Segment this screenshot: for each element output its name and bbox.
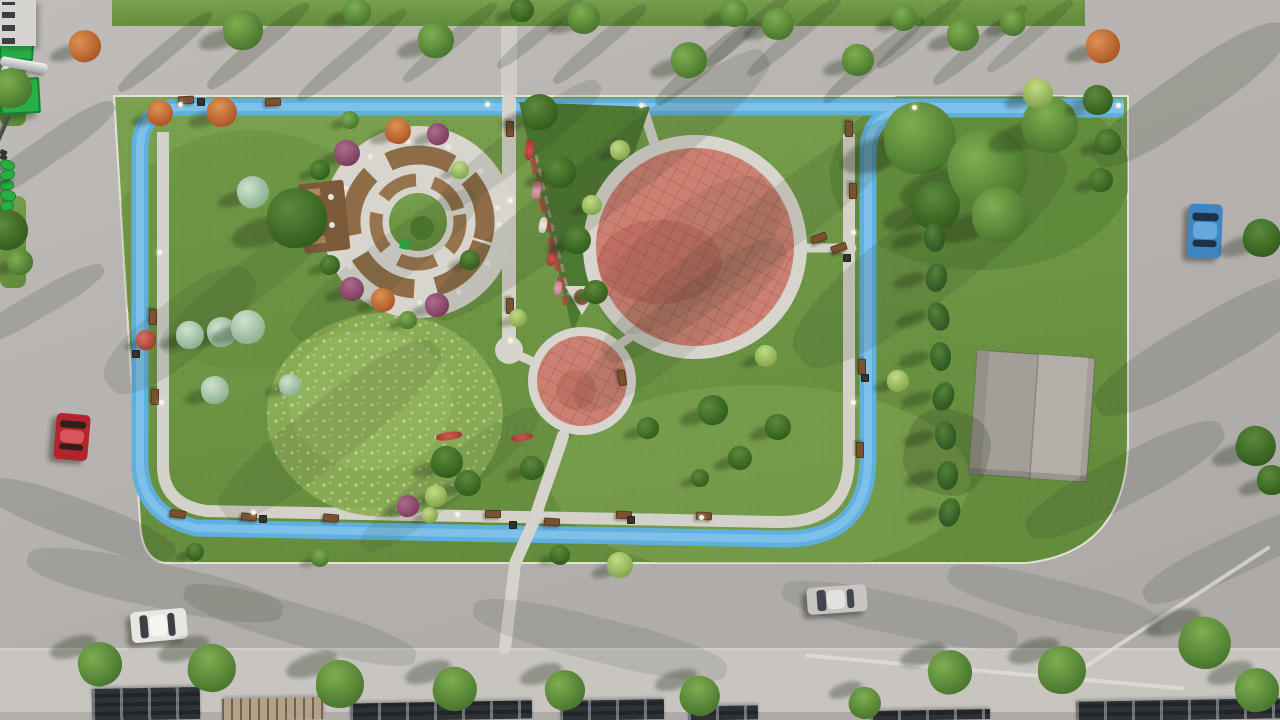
left-grass-patch-1 <box>0 42 26 126</box>
roof-sunlit-half <box>1030 354 1089 481</box>
bottom-sidewalk <box>0 650 1280 712</box>
service-building <box>969 350 1095 482</box>
playground-small <box>528 327 636 435</box>
plaza-center-tree <box>410 216 434 240</box>
playground-large <box>583 135 807 359</box>
park-aerial-scene <box>0 0 1280 720</box>
left-grass-patch-2 <box>0 196 26 288</box>
plaza-green-box <box>399 239 410 250</box>
wildflower-meadow <box>267 313 503 517</box>
corner-building-windows <box>2 2 15 44</box>
curb-line <box>0 648 1280 650</box>
path-junction-pad <box>495 336 523 364</box>
corner-building-facade <box>0 0 36 46</box>
top-grass-texture <box>112 0 1085 26</box>
top-road-crossing <box>501 26 517 102</box>
site-plan-base <box>0 0 1280 720</box>
wooden-deck <box>297 180 350 254</box>
